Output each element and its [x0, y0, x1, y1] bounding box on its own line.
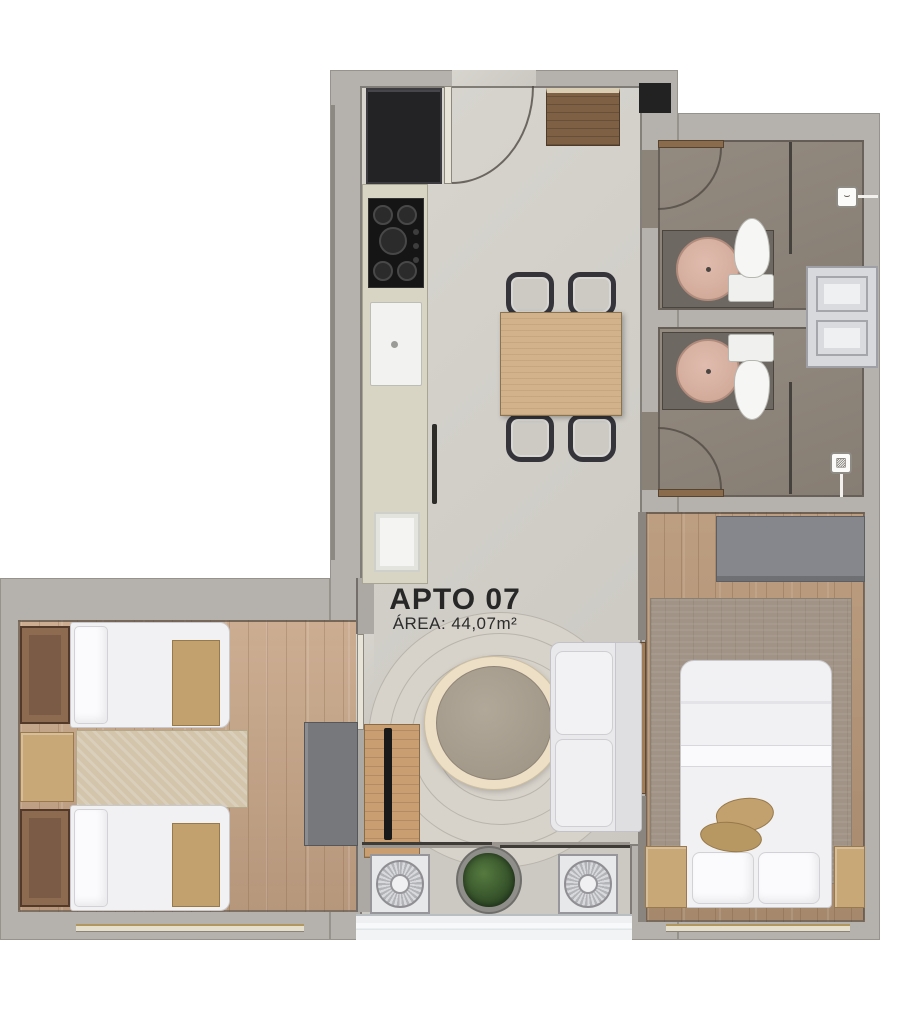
sofa-backrest [615, 643, 641, 831]
window-kitchen-west [331, 105, 335, 560]
burner [373, 205, 393, 225]
duvet-fold [681, 745, 831, 767]
laundry-sink [374, 512, 420, 572]
sofa-cushion [555, 651, 613, 735]
pillow [692, 852, 754, 904]
wardrobe-left [304, 722, 358, 846]
nightstand [834, 846, 865, 908]
wall-right-bedroom-upper [638, 512, 646, 640]
bed-throw [172, 823, 220, 907]
bed-throw [172, 640, 220, 726]
kitchen-sink [370, 302, 422, 386]
drain-leader-bottom [840, 474, 843, 497]
ac-condenser-right [558, 854, 618, 914]
cooktop-knob [413, 229, 419, 235]
window-right-bedroom [666, 924, 850, 932]
burner [397, 205, 417, 225]
balcony-slider-leaf [362, 842, 492, 845]
bathroom-bottom-door-leaf [658, 489, 724, 497]
entry-door-opening [452, 70, 536, 86]
nightstand [20, 732, 74, 802]
burner [373, 261, 393, 281]
toilet-tank-bottom [728, 334, 774, 362]
shaft-unit-bottom [816, 320, 868, 356]
headboard [20, 626, 70, 724]
dining-table [500, 312, 622, 416]
tv-console [364, 724, 420, 858]
pillow [74, 809, 108, 907]
entry-door-leaf [444, 86, 452, 184]
area-label: ÁREA: 44,07m² [355, 614, 555, 634]
sofa-cushion [555, 739, 613, 827]
tv [384, 728, 392, 840]
fan-center [390, 874, 410, 894]
cabinet-handle [432, 424, 437, 504]
drain-leader-top [856, 195, 878, 198]
bedroom-left-rug [76, 730, 248, 808]
wardrobe-right [716, 516, 865, 582]
sofa [550, 642, 642, 832]
plant-pot [456, 846, 522, 914]
bathroom-bottom-door-opening [642, 412, 658, 490]
unit-label: APTO 07 [355, 583, 555, 617]
bathroom-top-door-leaf [658, 140, 724, 148]
shaft-box [639, 83, 671, 113]
pillow [74, 626, 108, 724]
window-left-bedroom [76, 924, 304, 932]
shower-partition-bottom [789, 382, 792, 494]
toilet-tank-top [728, 274, 774, 302]
shower-drain-icon: ⌣ [836, 186, 858, 208]
bathroom-top-door-opening [642, 150, 658, 228]
nightstand [645, 846, 687, 908]
toilet-bowl-top [734, 218, 770, 278]
ac-condenser-left [370, 854, 430, 914]
shower-partition-top [789, 142, 792, 254]
door-leaf-left-bedroom [357, 634, 364, 730]
coffee-table [436, 666, 552, 780]
shower-drain-icon: ▨ [830, 452, 852, 474]
balcony-railing [356, 914, 632, 940]
shoe-cabinet [546, 88, 620, 146]
dining-chair [506, 414, 554, 462]
balcony-slider-leaf [500, 845, 630, 848]
burner [397, 261, 417, 281]
cooktop-knob [413, 243, 419, 249]
faucet [391, 341, 398, 348]
cooktop [368, 198, 424, 288]
pillow [758, 852, 820, 904]
floor-plan: ⌣ ▨ [0, 0, 900, 1010]
headboard [20, 809, 70, 907]
burner [379, 227, 407, 255]
plant [463, 853, 515, 907]
duvet-fold [681, 701, 831, 704]
dining-chair [568, 414, 616, 462]
refrigerator [366, 88, 442, 184]
fan-center [578, 874, 598, 894]
cooktop-knob [413, 257, 419, 263]
shaft-unit-top [816, 276, 868, 312]
